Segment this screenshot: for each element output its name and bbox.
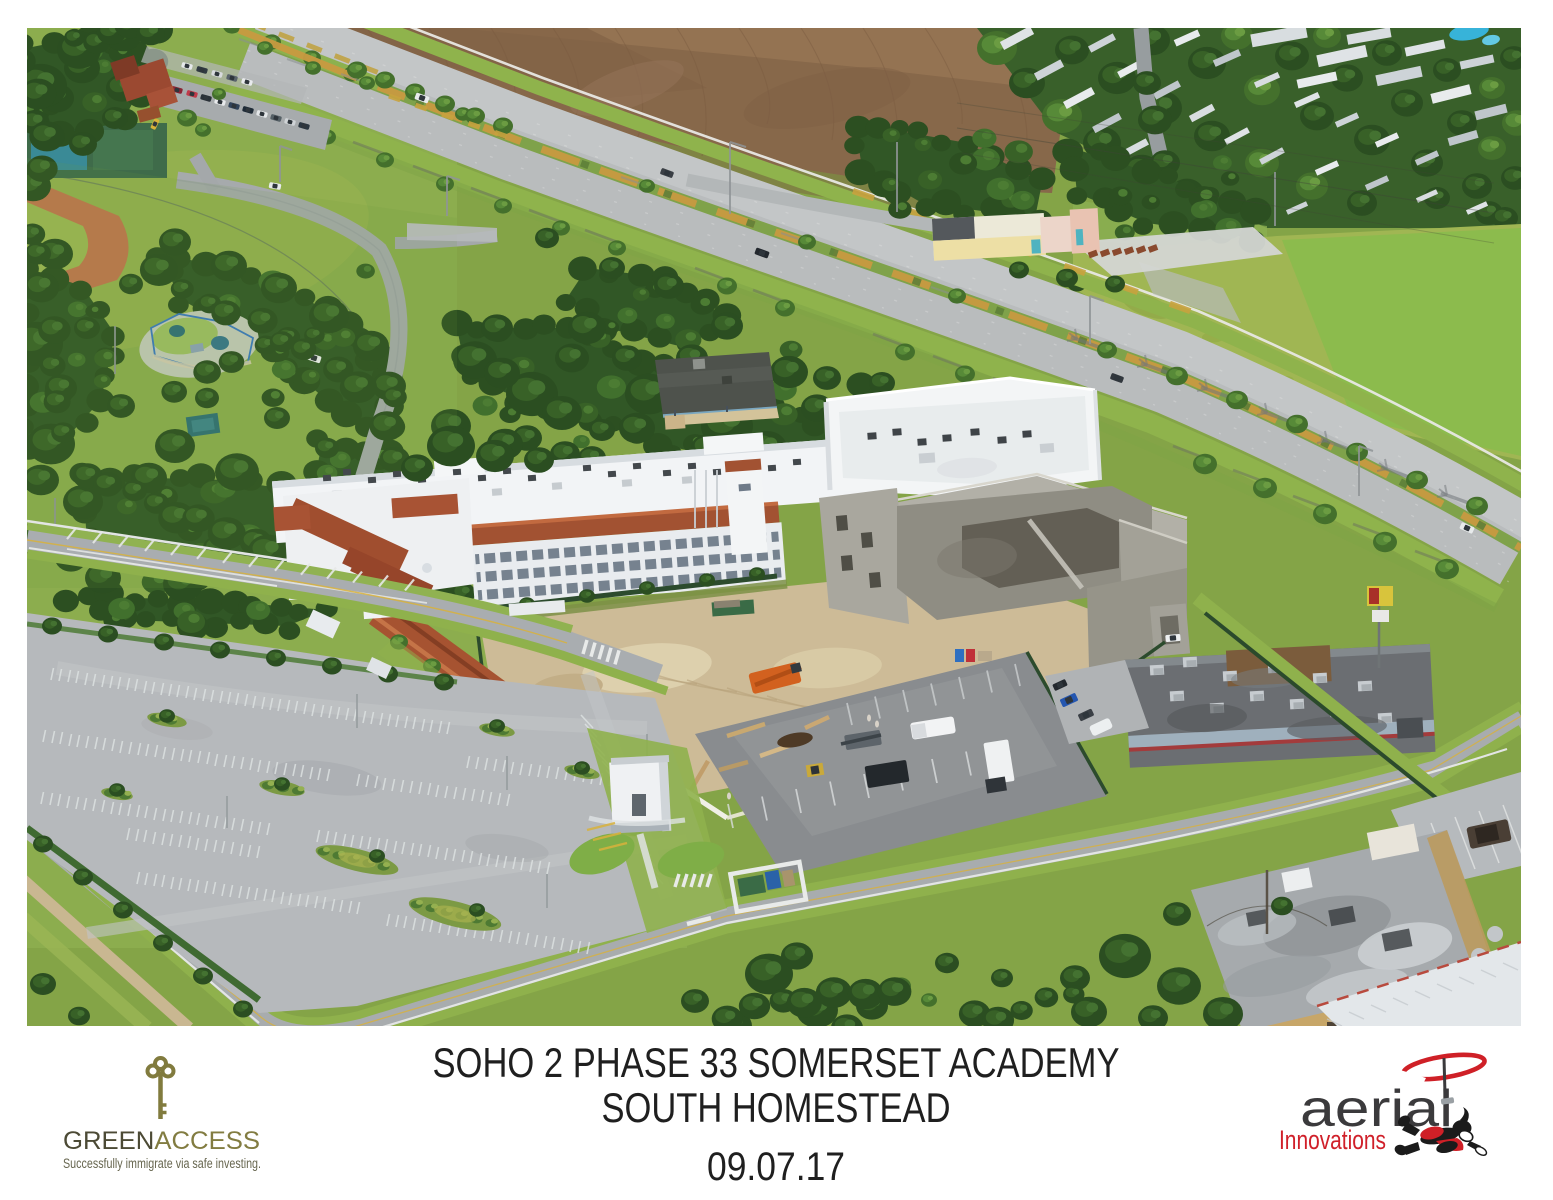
svg-text:GREENACCESS: GREENACCESS bbox=[63, 1127, 260, 1155]
svg-text:Successfully immigrate via saf: Successfully immigrate via safe investin… bbox=[63, 1156, 261, 1171]
svg-text:SOHO 2 PHASE 33 SOMERSET ACADE: SOHO 2 PHASE 33 SOMERSET ACADEMY bbox=[433, 1039, 1120, 1086]
svg-text:SOUTH HOMESTEAD: SOUTH HOMESTEAD bbox=[602, 1084, 951, 1131]
svg-text:09.07.17: 09.07.17 bbox=[707, 1145, 845, 1189]
svg-text:Innovations: Innovations bbox=[1279, 1125, 1386, 1155]
